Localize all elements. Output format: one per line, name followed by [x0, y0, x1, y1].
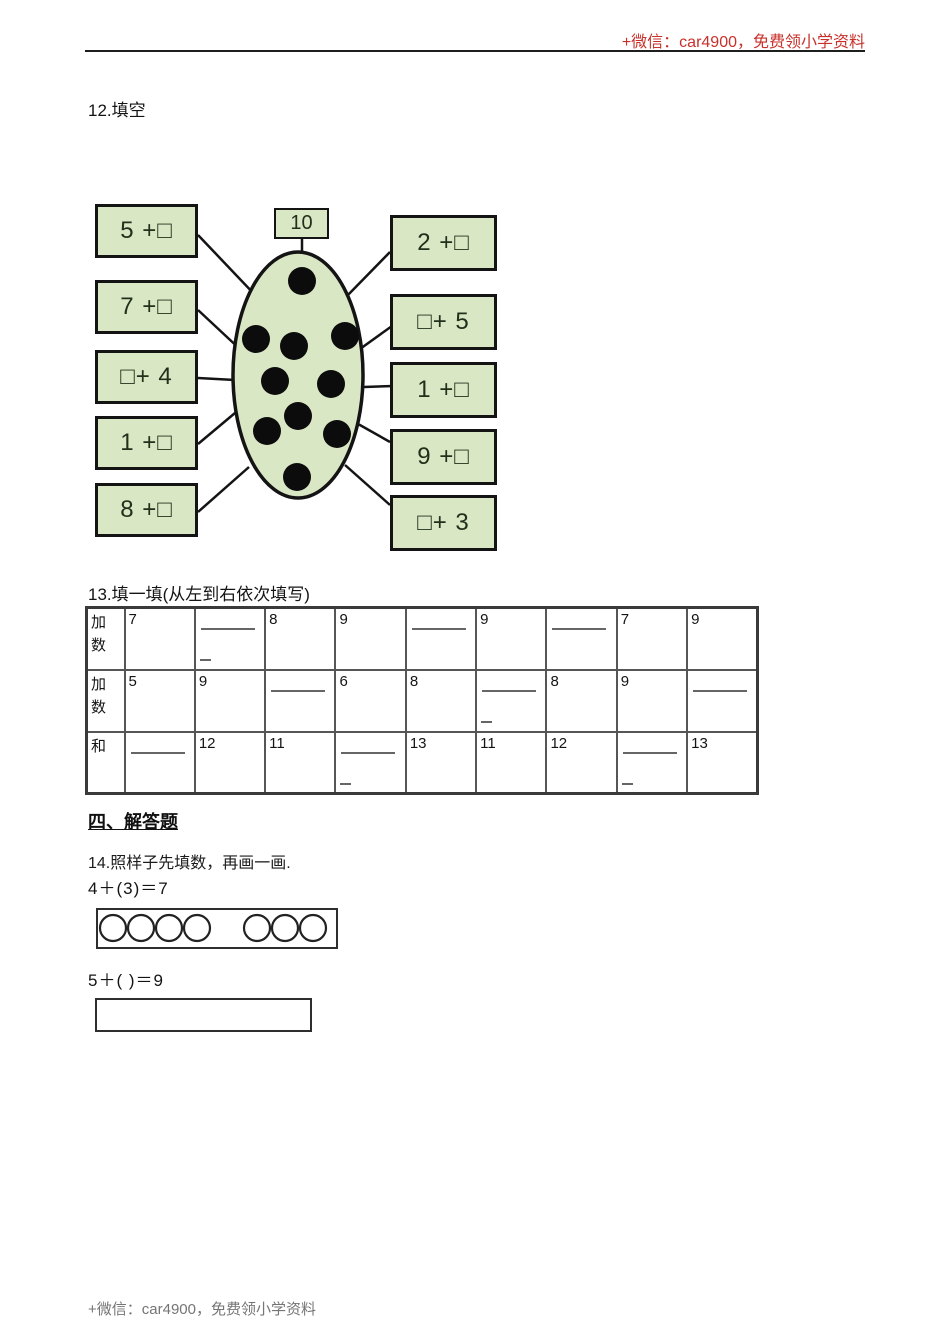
worksheet-page: +微信：car4900，免费领小学资料 12.填空 10 5 +□7 +□□+ …	[0, 0, 950, 1344]
counting-dot	[323, 420, 351, 448]
header-rule	[85, 50, 865, 52]
row-header: 和	[87, 732, 125, 794]
section4-title: 四、解答题	[88, 808, 178, 834]
left-expression-box[interactable]: 7 +□	[95, 280, 198, 334]
right-expression-box[interactable]: 9 +□	[390, 429, 497, 485]
row-header: 加数	[87, 670, 125, 732]
table-cell-blank[interactable]	[265, 670, 335, 732]
counting-dot	[283, 463, 311, 491]
right-expression-box[interactable]: 1 +□	[390, 362, 497, 418]
blank-underline	[341, 735, 395, 754]
table-cell-blank[interactable]	[546, 608, 616, 670]
connector-line	[345, 465, 390, 505]
table-cell-blank[interactable]	[335, 732, 405, 794]
example-circle	[300, 915, 326, 941]
connector-line	[345, 252, 390, 298]
row-header: 加数	[87, 608, 125, 670]
connector-line	[198, 467, 249, 512]
q13-label: 13.填一填(从左到右依次填写)	[88, 580, 310, 605]
table-cell-blank[interactable]	[476, 670, 546, 732]
table-cell-value: 13	[687, 732, 757, 794]
example-circles-figure	[95, 906, 341, 952]
footer-note: +微信：car4900，免费领小学资料	[88, 1298, 316, 1319]
example-circle	[244, 915, 270, 941]
example-circle	[128, 915, 154, 941]
blank-underline-wrap	[481, 692, 492, 723]
table-cell-value: 8	[265, 608, 335, 670]
table-cell-blank[interactable]	[687, 670, 757, 732]
blank-underline	[412, 611, 466, 630]
q14-example-equation: 4＋(3)＝7	[88, 874, 169, 899]
table-cell-blank[interactable]	[195, 608, 265, 670]
connector-line	[198, 413, 235, 444]
example-circles	[100, 915, 326, 941]
blank-underline	[271, 673, 325, 692]
example-circle	[100, 915, 126, 941]
table-cell-value: 12	[546, 732, 616, 794]
table-cell-value: 9	[687, 608, 757, 670]
counting-dot	[253, 417, 281, 445]
connector-line	[198, 235, 257, 297]
counting-dot	[331, 322, 359, 350]
header-note: +微信：car4900，免费领小学资料	[622, 28, 865, 52]
right-expression-box[interactable]: □+ 5	[390, 294, 497, 350]
counting-dot	[280, 332, 308, 360]
table-cell-value: 11	[265, 732, 335, 794]
table-cell-value: 5	[125, 670, 195, 732]
table-cell-value: 8	[406, 670, 476, 732]
q14-second-equation: 5＋( )＝9	[88, 966, 164, 991]
example-circle	[272, 915, 298, 941]
q14-label: 14.照样子先填数，再画一画.	[88, 849, 291, 873]
table-cell-value: 8	[546, 670, 616, 732]
table-cell-blank[interactable]	[406, 608, 476, 670]
blank-underline	[552, 611, 606, 630]
blank-underline-wrap	[622, 754, 633, 785]
blank-underline	[201, 611, 255, 630]
left-expression-box[interactable]: 8 +□	[95, 483, 198, 537]
connector-line	[198, 378, 235, 380]
right-expression-box[interactable]: □+ 3	[390, 495, 497, 551]
table-cell-value: 11	[476, 732, 546, 794]
table-cell-value: 9	[617, 670, 687, 732]
right-expression-box[interactable]: 2 +□	[390, 215, 497, 271]
addition-table: 加数789979加数596889和121113111213	[85, 606, 759, 795]
counting-dot	[317, 370, 345, 398]
counting-dot	[288, 267, 316, 295]
sum-box: 10	[274, 208, 329, 239]
counting-dot	[261, 367, 289, 395]
blank-underline	[131, 735, 185, 754]
table-cell-value: 9	[476, 608, 546, 670]
table-cell-value: 12	[195, 732, 265, 794]
table-cell-blank[interactable]	[617, 732, 687, 794]
table-cell-value: 9	[195, 670, 265, 732]
blank-underline-wrap	[340, 754, 351, 785]
blank-underline	[482, 673, 536, 692]
table-cell-value: 7	[125, 608, 195, 670]
table-cell-value: 13	[406, 732, 476, 794]
example-circle	[184, 915, 210, 941]
table-cell-value: 6	[335, 670, 405, 732]
example-circle	[156, 915, 182, 941]
q12-label: 12.填空	[88, 96, 146, 121]
table-cell-value: 9	[335, 608, 405, 670]
left-expression-box[interactable]: 5 +□	[95, 204, 198, 258]
blank-underline	[623, 735, 677, 754]
counting-dot	[284, 402, 312, 430]
left-expression-box[interactable]: □+ 4	[95, 350, 198, 404]
blank-underline	[693, 673, 747, 692]
table-cell-blank[interactable]	[125, 732, 195, 794]
counting-dot	[242, 325, 270, 353]
blank-underline-wrap	[200, 630, 211, 661]
table-cell-value: 7	[617, 608, 687, 670]
left-expression-box[interactable]: 1 +□	[95, 416, 198, 470]
q14-drawing-answer-box[interactable]	[95, 998, 312, 1032]
